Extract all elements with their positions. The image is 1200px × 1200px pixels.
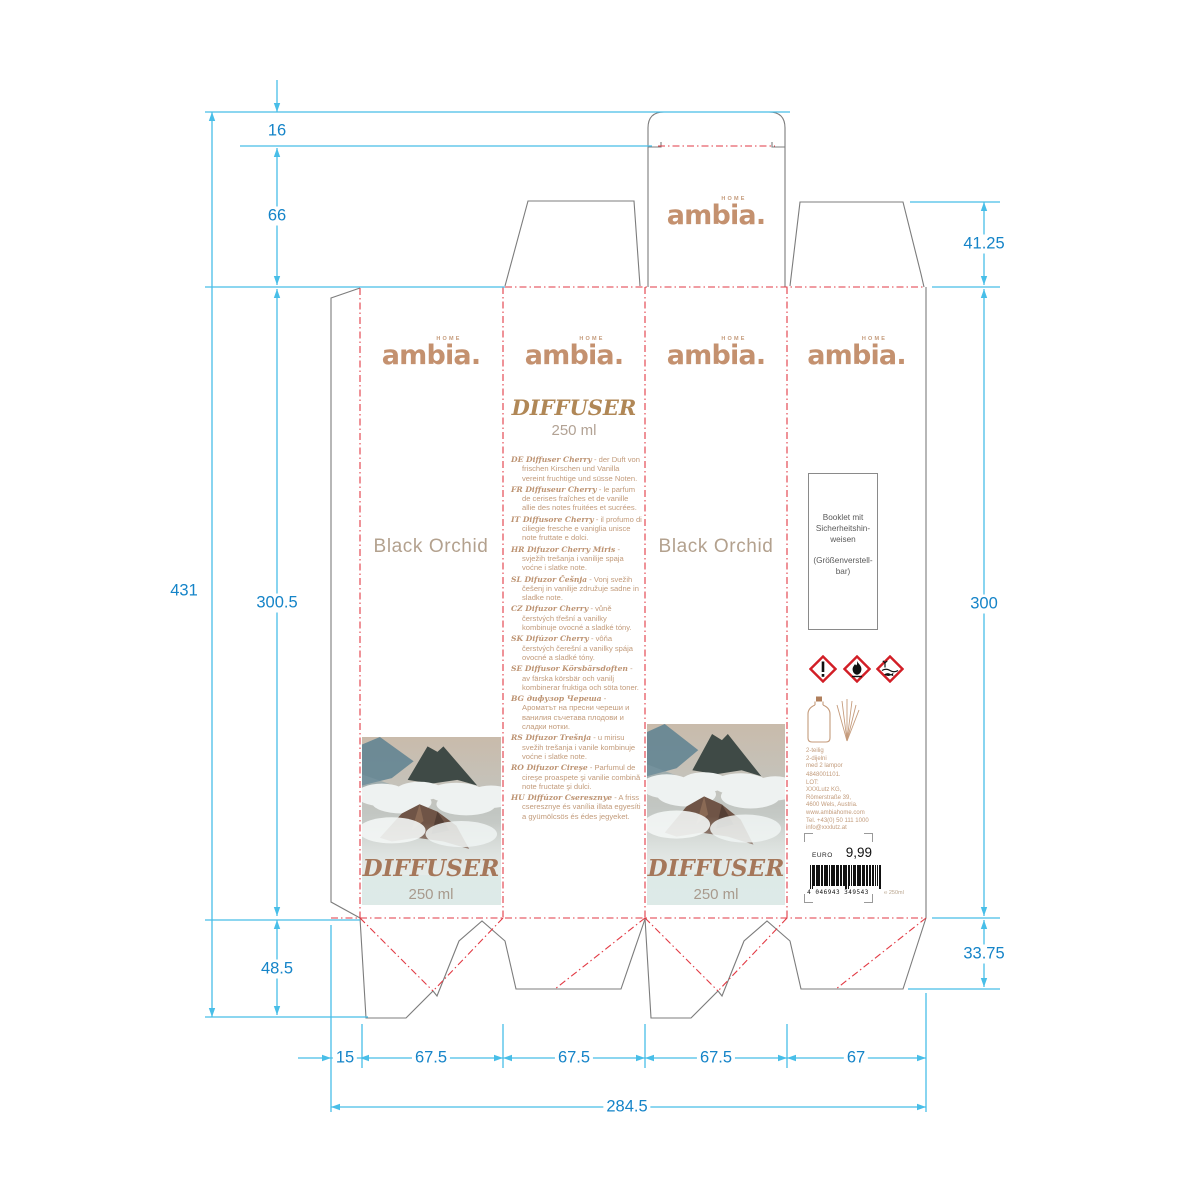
booklet-line <box>809 545 877 555</box>
description-item: SE Diffusor Körsbärsdoften - av färska k… <box>511 664 642 692</box>
description-item: DE Diffuser Cherry - der Duft von frisch… <box>511 455 642 483</box>
ghs-flame-icon <box>843 655 871 683</box>
barcode <box>810 865 866 889</box>
contents-text: 2-teilig2-dijelnimed 2 lampor <box>806 748 843 771</box>
barcode-bar <box>832 865 835 886</box>
description-item: IT Diffusore Cherry - il profumo di cili… <box>511 515 642 543</box>
text-line: 4848001101. <box>806 772 869 780</box>
booklet-line: weisen <box>809 534 877 545</box>
description-item: HR Difuzor Cherry Miris - svježih trešan… <box>511 545 642 573</box>
descriptions-list: DE Diffuser Cherry - der Duft von frisch… <box>511 455 642 823</box>
description-item: RO Difuzor Cireşe - Parfumul de cireşe p… <box>511 763 642 791</box>
crop-mark <box>804 833 813 842</box>
barcode-bar <box>817 865 820 886</box>
brand-wordmark: ambia. <box>360 343 502 369</box>
dim-label-panel3-width: 67.5 <box>697 1049 735 1068</box>
booklet-placeholder-box: Booklet mitSicherheitshin-weisen(Größenv… <box>808 473 878 630</box>
scent-name-back: Black Orchid <box>360 536 502 558</box>
brand-wordmark: ambia. <box>645 343 787 369</box>
dim-label-bottom-flap: 48.5 <box>258 960 296 979</box>
reed-sticks-icon <box>836 698 860 742</box>
booklet-line: bar) <box>809 566 877 577</box>
brand-wordmark: ambia. <box>645 203 787 229</box>
packaging-dieline-drawing: 16 66 431 300.5 48.5 41.25 300 33.75 15 … <box>0 0 1200 1200</box>
description-item: SK Difúzor Cherry - vôňa čerstvých čereš… <box>511 634 642 662</box>
text-line: www.ambiahome.com <box>806 810 869 818</box>
scent-name-front: Black Orchid <box>645 536 787 558</box>
ghs-exclamation-icon <box>809 655 837 683</box>
address-text: 4848001101.LOT:XXXLutz KG,Römerstraße 39… <box>806 772 869 833</box>
product-volume-info: 250 ml <box>503 422 645 439</box>
dim-label-panel4-width: 67 <box>844 1049 868 1068</box>
text-line: Tel. +43(0) 50 111 1000 <box>806 818 869 826</box>
text-line: LOT: <box>806 780 869 788</box>
brand-logo-front: HOME ambia. <box>645 336 787 369</box>
dim-label-total-width: 284.5 <box>603 1098 650 1117</box>
text-line: 4600 Wels, Austria. <box>806 802 869 810</box>
product-title-info: DIFFUSER <box>503 395 645 420</box>
text-line: Römerstraße 39, <box>806 795 869 803</box>
booklet-line: Booklet mit <box>809 512 877 523</box>
product-title-back: DIFFUSER <box>360 855 502 882</box>
dim-label-total-height: 431 <box>167 582 201 601</box>
brand-wordmark: ambia. <box>787 343 926 369</box>
text-line: info@xxxlutz.at <box>806 825 869 833</box>
dim-label-dust-flap: 41.25 <box>960 235 1007 254</box>
product-title-front: DIFFUSER <box>645 855 787 882</box>
diffuser-bottle-icon <box>806 696 832 744</box>
unit-note: ℮ 250ml <box>884 890 904 896</box>
description-item: SL Difuzor Češnja - Vonj svežih češenj i… <box>511 575 642 603</box>
dim-label-panel2-width: 67.5 <box>555 1049 593 1068</box>
brand-logo-back: HOME ambia. <box>360 336 502 369</box>
dim-label-right-flap: 33.75 <box>960 945 1007 964</box>
ghs-environment-icon <box>876 655 904 683</box>
text-line: 2-teilig <box>806 748 843 756</box>
brand-logo-lid: HOME ambia. <box>645 196 787 229</box>
dim-label-right-body: 300 <box>967 595 1001 614</box>
product-volume-front: 250 ml <box>645 886 787 903</box>
price-value: 9,99 <box>838 845 872 860</box>
barcode-digits: 4 046943 349543 <box>807 889 869 896</box>
description-item: FR Diffuseur Cherry - le parfum de ceris… <box>511 485 642 513</box>
text-line: 2-dijelni <box>806 756 843 764</box>
description-item: CZ Difuzor Cherry - vůně čerstvých třešn… <box>511 604 642 632</box>
brand-logo-side: HOME ambia. <box>787 336 926 369</box>
text-line: XXXLutz KG, <box>806 787 869 795</box>
description-item: BG дифузор Череша - Ароматът на пресни ч… <box>511 694 642 731</box>
barcode-bar <box>858 865 861 886</box>
booklet-line: Sicherheitshin- <box>809 523 877 534</box>
dim-label-glue-flap: 15 <box>333 1049 357 1068</box>
price-currency-label: EURO <box>812 852 833 859</box>
brand-logo-info: HOME ambia. <box>503 336 645 369</box>
description-item: RS Difuzor Trešnja - u mirisu svežih tre… <box>511 733 642 761</box>
description-item: HU Diffúzor Cseresznye - A friss cseresz… <box>511 793 642 821</box>
dim-label-body-height: 300.5 <box>253 594 300 613</box>
dim-label-lid-height: 66 <box>265 207 289 226</box>
barcode-bar <box>880 865 881 889</box>
dim-label-panel1-width: 67.5 <box>412 1049 450 1068</box>
brand-wordmark: ambia. <box>503 343 645 369</box>
booklet-line: (Größenverstell- <box>809 555 877 566</box>
dim-label-top-tuck: 16 <box>265 122 289 141</box>
text-line: med 2 lampor <box>806 763 843 771</box>
product-volume-back: 250 ml <box>360 886 502 903</box>
crop-mark <box>864 833 873 842</box>
